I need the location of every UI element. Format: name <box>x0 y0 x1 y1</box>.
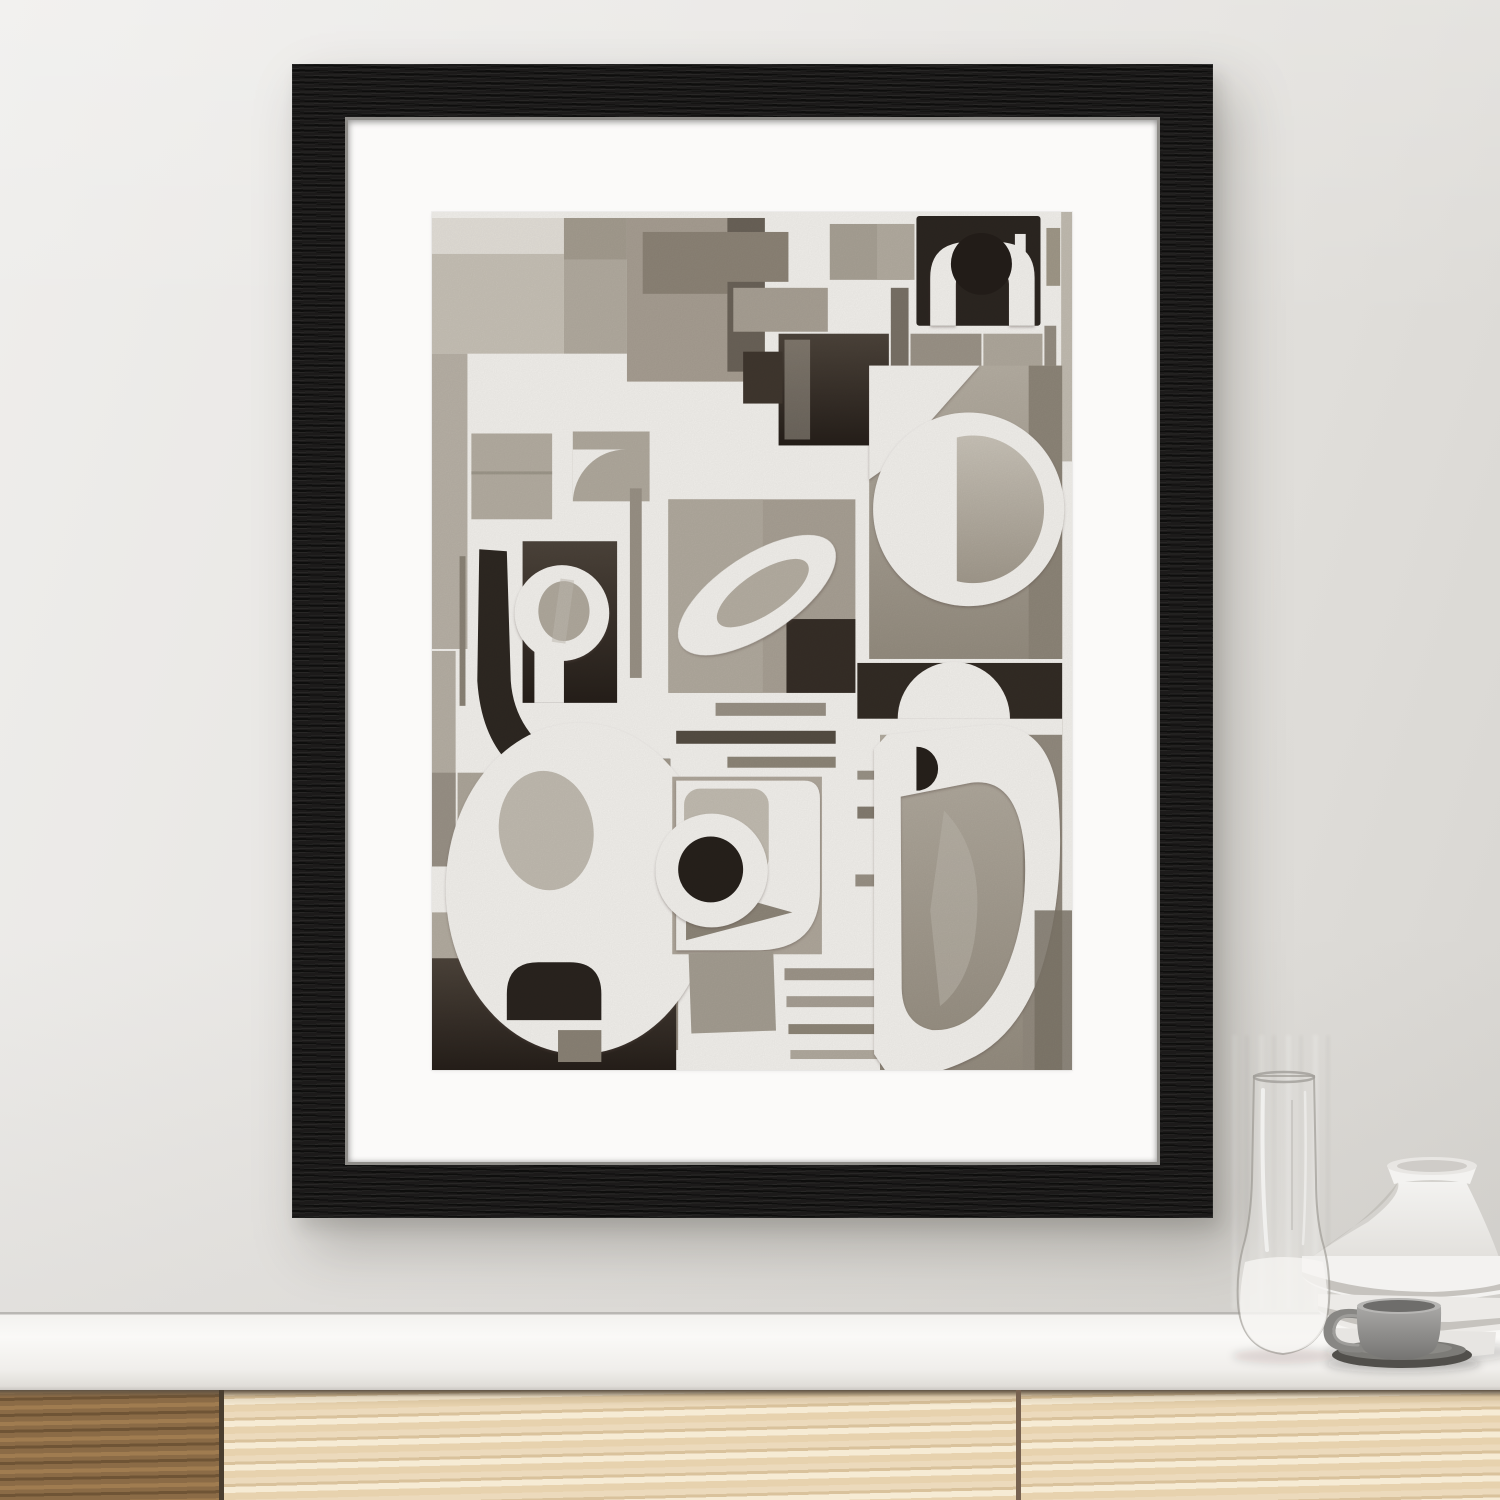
mat-board <box>348 120 1157 1162</box>
cabinet-door-light-right <box>1021 1390 1500 1500</box>
artwork-canvas <box>432 212 1072 1070</box>
artwork-print <box>432 212 1072 1070</box>
cabinet-door-dark <box>0 1390 219 1500</box>
glass-vase <box>1238 1072 1330 1354</box>
scene: { "meta": { "description": "Interior pho… <box>0 0 1500 1500</box>
paper-grain-overlay <box>432 212 1072 1070</box>
still-life-objects <box>1180 1050 1500 1380</box>
cabinet-door-light-left <box>224 1390 1016 1500</box>
cabinet-seam-right <box>1016 1390 1021 1500</box>
sideboard-cabinet <box>0 1390 1500 1500</box>
cabinet-seam-left <box>219 1390 224 1500</box>
cup-body <box>1357 1307 1441 1360</box>
picture-frame <box>292 64 1213 1218</box>
